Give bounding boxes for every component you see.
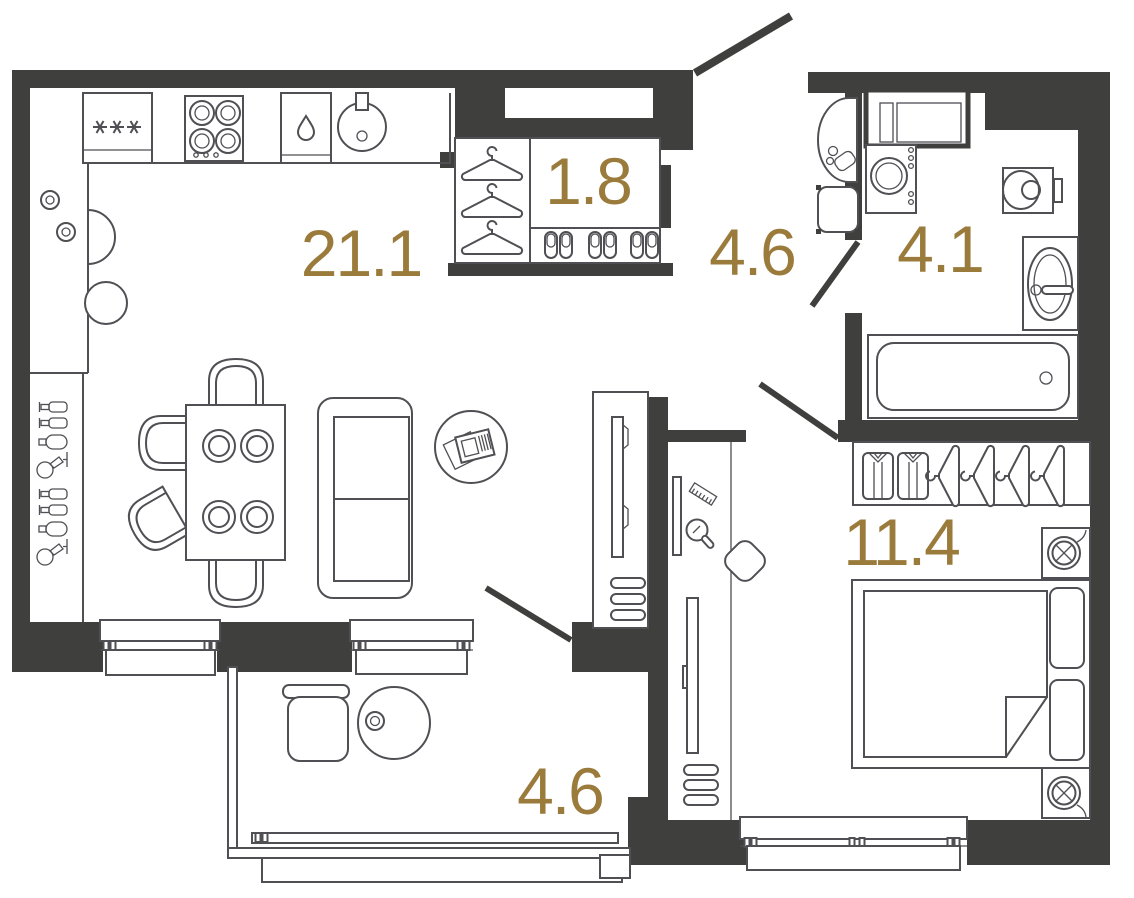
loggia-door-icon (486, 588, 571, 640)
bathtub-icon (868, 335, 1078, 418)
bedroom-window (740, 817, 967, 870)
chair-icon (209, 359, 263, 407)
dressing-area (673, 442, 769, 820)
stool-icon (721, 537, 769, 585)
floor-plan-page: 21.1 1.8 4.6 4.1 11.4 4.6 (0, 0, 1134, 898)
laundry-basket-icon (816, 185, 860, 234)
wall-sink-icon (818, 98, 857, 182)
vent-grille-icon (611, 578, 645, 620)
floor-mirror-icon (683, 598, 698, 753)
slippers-icon (545, 232, 658, 258)
toilet-icon (1003, 168, 1062, 213)
room-label-loggia: 4.6 (517, 754, 603, 828)
comb-icon (689, 483, 716, 505)
armchair-icon (283, 685, 349, 761)
dining-set (121, 359, 285, 607)
room-label-hallway: 4.6 (709, 215, 795, 289)
fridge-icon (83, 93, 152, 163)
room-label-bathroom: 4.1 (897, 212, 983, 286)
room-label-entry-closet: 1.8 (545, 144, 631, 218)
bathroom-door-icon (812, 242, 858, 306)
rug-newspaper-icon (435, 411, 507, 483)
chair-icon (121, 487, 190, 558)
plates-icon (41, 191, 127, 324)
shirt-icon (863, 453, 893, 499)
chair-icon (209, 559, 263, 607)
washing-machine-icon (866, 145, 916, 213)
nightstand-lamp-icon (1042, 768, 1090, 818)
nightstand-lamp-icon (1042, 528, 1090, 578)
wardrobe (853, 442, 1090, 506)
chair-icon (139, 416, 187, 470)
bedroom-furniture (852, 442, 1090, 818)
kitchen-sink-icon (338, 93, 386, 151)
floor-plan-canvas: 21.1 1.8 4.6 4.1 11.4 4.6 (0, 0, 1134, 898)
sofa-icon (318, 398, 412, 598)
stove-icon (185, 96, 243, 161)
loggia-furniture (283, 685, 430, 761)
radiator-icon (684, 765, 718, 805)
living-window-1 (100, 620, 220, 675)
coffee-table-icon (358, 687, 430, 759)
hand-mirror-icon (687, 520, 715, 550)
room-label-living-kitchen: 21.1 (301, 216, 421, 290)
room-label-bedroom: 11.4 (843, 505, 959, 579)
dressing-shelf-icon (673, 477, 681, 555)
dining-table-icon (186, 405, 285, 560)
bedroom-door-icon (760, 384, 838, 438)
entry-door-icon (695, 16, 791, 73)
bar-bottles-icon (37, 402, 67, 565)
living-window-2 (350, 620, 473, 674)
vanity-sink-icon (1023, 237, 1078, 330)
dishwasher-drop-icon (281, 93, 331, 163)
tv-console (593, 392, 648, 628)
bed-icon (852, 580, 1090, 768)
duct-shaft-icon (866, 90, 968, 146)
shirt-icon (898, 453, 928, 499)
